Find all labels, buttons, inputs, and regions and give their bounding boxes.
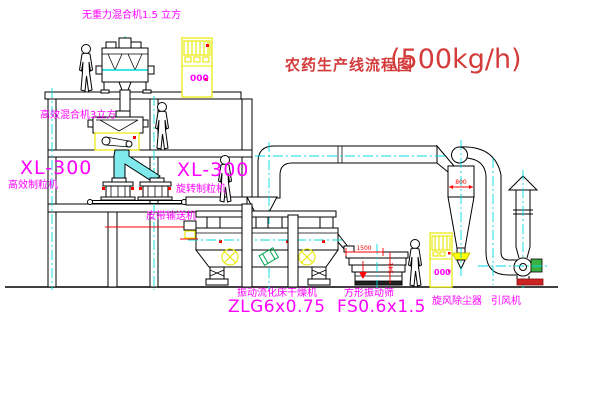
granulator-right-model: XL-300: [177, 161, 249, 180]
flow-diagram-canvas: 000: [0, 0, 600, 403]
control-cabinet-ground: 000: [430, 233, 452, 287]
granulator-right-name: 旋转制粒机: [176, 185, 226, 195]
granulator-units: [101, 182, 172, 200]
cabinet-top-display: 000: [190, 74, 209, 84]
vibrating-sieve: 1500 541: [346, 244, 408, 288]
dryer-model-label: ZLG6x0.75: [228, 299, 326, 316]
sieve-height-dim: 541: [388, 262, 395, 274]
sieve-model-label: FS0.6x1.5: [337, 299, 426, 316]
belt-conveyor-label: 皮带输送机: [146, 212, 196, 222]
mid-mixer-label: 高效混合机3立方: [40, 111, 116, 121]
page-title-capacity: (500kg/h): [390, 44, 522, 75]
control-cabinet-top: 000: [182, 38, 212, 97]
top-mixer-label: 无重力混合机1.5 立方: [82, 11, 181, 21]
induced-draft-fan: [478, 258, 550, 285]
worker-figure-top-floor: [80, 45, 93, 92]
cyclone-label: 旋风除尘器: [432, 297, 482, 307]
worker-figure-ground: [409, 240, 422, 287]
fluid-bed-dryer: [180, 211, 345, 285]
dryer-discharge-duct: [288, 215, 298, 287]
sieve-width-dim: 1500: [356, 245, 371, 252]
fan-label: 引风机: [491, 297, 521, 307]
fan-base: [517, 279, 543, 285]
mixer-drop-chute: [120, 90, 130, 112]
top-mixer-machine: [96, 38, 154, 93]
fan-motor: [531, 259, 542, 272]
granulator-left-model: XL-300: [20, 159, 92, 178]
cabinet-ground-display: 000: [434, 268, 451, 277]
building-column-front: [242, 204, 252, 287]
granulator-left-name: 高效制粒机: [8, 181, 58, 191]
